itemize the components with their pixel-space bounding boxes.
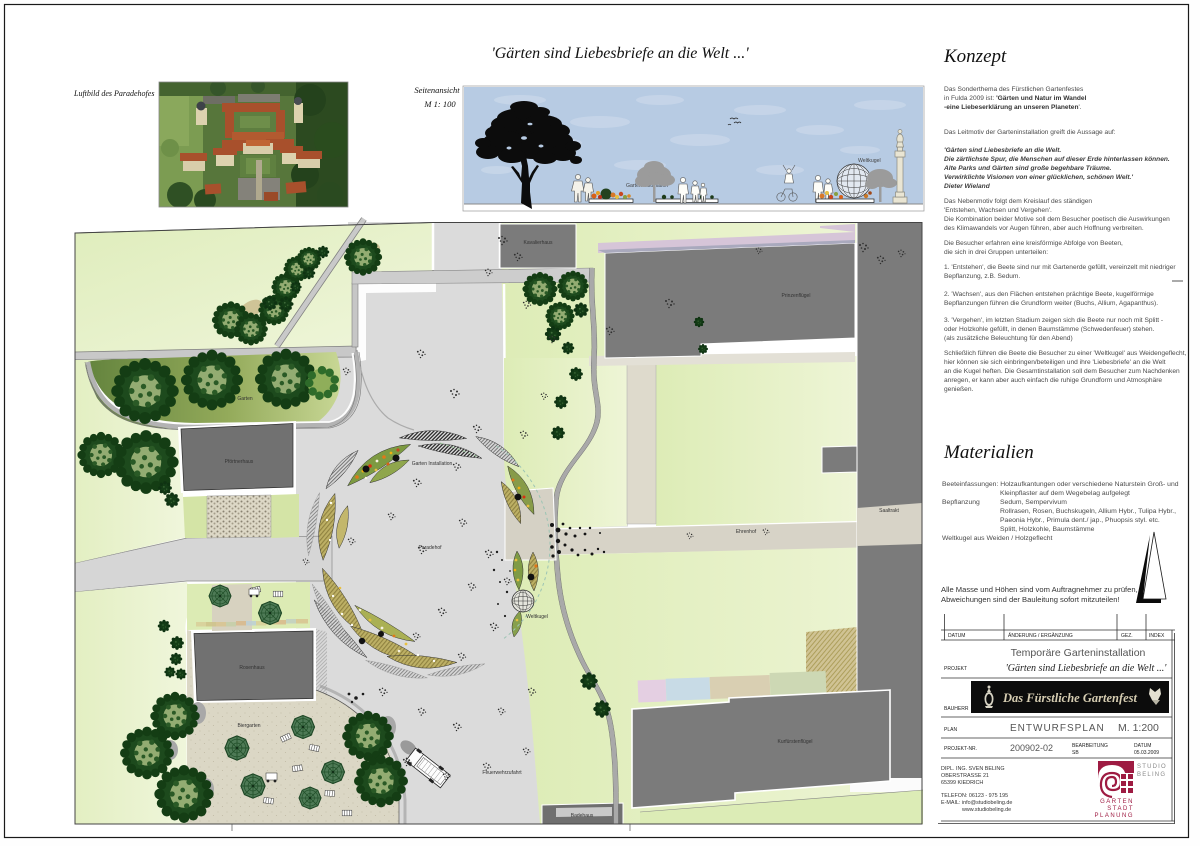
svg-text:an die Kugel heften. Die Gesam: an die Kugel heften. Die Gesamtinstallat… <box>944 368 1180 375</box>
svg-text:Garten: Garten <box>237 396 253 402</box>
svg-text:Kurfürstenflügel: Kurfürstenflügel <box>777 739 812 745</box>
svg-text:Paeonia Hybr., Primula dent./: Paeonia Hybr., Primula dent./ jap., Phuo… <box>1000 517 1160 524</box>
svg-text:Pförtnerhaus: Pförtnerhaus <box>225 459 254 465</box>
svg-text:TELEFON: 06123 - 975 195: TELEFON: 06123 - 975 195 <box>941 793 1008 799</box>
svg-text:DATUM: DATUM <box>1134 743 1151 749</box>
svg-text:Das Fürstliche Gartenfest: Das Fürstliche Gartenfest <box>1002 691 1138 705</box>
svg-text:GARTEN: GARTEN <box>1100 799 1134 805</box>
svg-text:Schließlich führen die Beete d: Schließlich führen die Beete die Besuche… <box>944 350 1187 357</box>
svg-text:Rollrasen, Rosen, Buchskugeln,: Rollrasen, Rosen, Buchskugeln, Allium Hy… <box>1000 508 1176 515</box>
svg-text:Konzept: Konzept <box>943 46 1007 67</box>
svg-text:'Gärten sind Liebesbriefe an d: 'Gärten sind Liebesbriefe an die Welt ..… <box>1006 663 1168 674</box>
svg-text:200902-02: 200902-02 <box>1010 743 1053 753</box>
svg-text:PLANUNG: PLANUNG <box>1094 813 1134 819</box>
svg-text:Bepflanzung: Bepflanzung <box>942 499 980 506</box>
svg-text:Luftbild des Paradehofes: Luftbild des Paradehofes <box>73 89 154 98</box>
svg-text:www.studiobeling.de: www.studiobeling.de <box>961 807 1011 813</box>
svg-text:Die Kombination beider Motive: Die Kombination beider Motive soll dem B… <box>944 216 1170 223</box>
svg-text:Das Leitmotiv der Garteninstal: Das Leitmotiv der Garteninstallation gre… <box>944 129 1116 136</box>
svg-text:Das Nebenmotiv folgt dem Kreis: Das Nebenmotiv folgt dem Kreislauf des s… <box>944 198 1092 205</box>
svg-text:PROJEKT: PROJEKT <box>944 666 967 672</box>
svg-text:Weltkugel: Weltkugel <box>858 158 881 164</box>
svg-text:M 1: 100: M 1: 100 <box>423 99 456 109</box>
svg-text:Alle Masse und Höhen sind vom: Alle Masse und Höhen sind vom Auftragneh… <box>941 585 1138 594</box>
svg-text:Bepflanzung, z.B. Sedum.: Bepflanzung, z.B. Sedum. <box>944 273 1020 280</box>
svg-text:Rosenhaus: Rosenhaus <box>239 665 265 671</box>
svg-text:Splitt, Holzkohle, Baumstämme: Splitt, Holzkohle, Baumstämme <box>1000 526 1095 533</box>
svg-text:Ehrenhof: Ehrenhof <box>736 529 757 535</box>
svg-text:genießen.: genießen. <box>944 386 973 393</box>
svg-text:in Fulda 2009 ist: 'Gärten und: in Fulda 2009 ist: 'Gärten und Natur im … <box>944 95 1087 102</box>
svg-text:Garten Installation: Garten Installation <box>412 461 453 467</box>
svg-text:Beeteinfassungen: Holzaufkantu: Beeteinfassungen: Holzaufkantungen oder … <box>942 481 1179 488</box>
svg-text:Weltkugel aus Weiden / Holzgef: Weltkugel aus Weiden / Holzgeflecht <box>942 535 1053 542</box>
svg-text:2. 'Wachsen', aus den Flächen: 2. 'Wachsen', aus den Flächen entstehen … <box>944 291 1154 298</box>
svg-text:'Gärten sind Liebesbriefe an d: 'Gärten sind Liebesbriefe an die Welt ..… <box>491 45 749 62</box>
svg-text:E-MAIL: info@studiobeling.de: E-MAIL: info@studiobeling.de <box>941 800 1012 806</box>
svg-text:ENTWURFSPLAN: ENTWURFSPLAN <box>1010 723 1105 734</box>
svg-text:DIPL. ING. SVEN BELING: DIPL. ING. SVEN BELING <box>941 766 1005 772</box>
svg-text:Seitenansicht: Seitenansicht <box>414 85 460 95</box>
svg-text:'Entstehen, Wachsen und Vergeh: 'Entstehen, Wachsen und Vergehen'. <box>944 207 1052 214</box>
svg-text:die sich in drei Gruppen unte: die sich in drei Gruppen unterteilen: <box>944 249 1048 256</box>
svg-text:hier können sie sich einbringe: hier können sie sich einbringen/beteilig… <box>944 359 1166 366</box>
svg-text:Weltkugel: Weltkugel <box>526 614 548 620</box>
svg-text:Verwirklichte Visionen von ein: Verwirklichte Visionen von einer glückli… <box>944 174 1133 181</box>
svg-text:BEARBEITUNG: BEARBEITUNG <box>1072 743 1108 749</box>
svg-text:GEZ.: GEZ. <box>1121 633 1133 639</box>
svg-text:oder Holzkohle gefüllt, in den: oder Holzkohle gefüllt, in denen Baumstä… <box>944 326 1155 333</box>
svg-text:65399 KIEDRICH: 65399 KIEDRICH <box>941 780 983 786</box>
svg-text:anregen, er kann aber auch ein: anregen, er kann aber auch einfach die r… <box>944 377 1162 384</box>
svg-text:Kleinpflaster auf dem Wegebela: Kleinpflaster auf dem Wegebelag aufgeleg… <box>1000 490 1130 497</box>
svg-text:PROJEKT-NR.: PROJEKT-NR. <box>944 746 977 752</box>
svg-text:Saaltrakt: Saaltrakt <box>879 508 899 514</box>
svg-text:(als zusätzliche Beleuchtung f: (als zusätzliche Beleuchtung für den Abe… <box>944 335 1073 342</box>
svg-text:Dieter Wieland: Dieter Wieland <box>944 183 991 190</box>
svg-text:M. 1:200: M. 1:200 <box>1118 722 1159 734</box>
svg-text:Feuerwehrzufahrt: Feuerwehrzufahrt <box>482 770 522 776</box>
svg-text:Temporäre Garteninstallation: Temporäre Garteninstallation <box>1011 647 1146 659</box>
svg-text:Das Sonderthema des Fürstliche: Das Sonderthema des Fürstlichen Gartenfe… <box>944 86 1084 93</box>
svg-text:PLAN: PLAN <box>944 727 957 733</box>
svg-text:Abweichungen sind der Bauleitu: Abweichungen sind der Bauleitung sofort … <box>941 595 1120 604</box>
svg-text:Biergarten: Biergarten <box>237 723 260 729</box>
svg-text:Badehaus: Badehaus <box>571 813 594 819</box>
svg-text:'Gärten sind Liebesbriefe an d: 'Gärten sind Liebesbriefe an die Welt. <box>944 147 1061 154</box>
svg-text:BAUHERR: BAUHERR <box>944 706 969 712</box>
svg-text:BELING: BELING <box>1137 772 1166 778</box>
svg-text:1. 'Entstehen', die Beete sind: 1. 'Entstehen', die Beete sind nur mit G… <box>944 264 1176 271</box>
svg-text:Alte Parks und Gärten sind gro: Alte Parks und Gärten sind große begehba… <box>943 165 1111 172</box>
svg-text:Prinzenflügel: Prinzenflügel <box>782 293 811 299</box>
svg-text:INDEX: INDEX <box>1149 633 1165 639</box>
svg-text:Materialien: Materialien <box>943 442 1034 463</box>
svg-text:Die zärtlichste Spur, die Mens: Die zärtlichste Spur, die Menschen auf d… <box>944 156 1170 163</box>
svg-text:Bepflanzungen führen die Grund: Bepflanzungen führen die Grundform weite… <box>944 300 1158 307</box>
svg-text:-eine Liebeserklärung an unser: -eine Liebeserklärung an unseren Planete… <box>944 104 1082 111</box>
svg-text:Paradehof: Paradehof <box>418 545 442 551</box>
svg-text:STADT: STADT <box>1107 806 1134 812</box>
svg-text:ÄNDERUNG / ERGÄNZUNG: ÄNDERUNG / ERGÄNZUNG <box>1008 632 1073 639</box>
svg-text:Sedum, Sempervivum: Sedum, Sempervivum <box>1000 499 1067 506</box>
svg-text:Kavalierhaus: Kavalierhaus <box>524 240 553 246</box>
svg-text:OBERSTRASSE 21: OBERSTRASSE 21 <box>941 773 989 779</box>
svg-text:05.03.2009: 05.03.2009 <box>1134 750 1159 756</box>
svg-text:DATUM: DATUM <box>948 633 965 639</box>
svg-text:des Klimawandels vor Augen füh: des Klimawandels vor Augen führen, aber … <box>944 225 1144 232</box>
svg-text:SB: SB <box>1072 750 1079 756</box>
svg-text:Die Besucher erfahren eine kre: Die Besucher erfahren eine kreisförmige … <box>944 240 1123 247</box>
svg-text:STUDIO: STUDIO <box>1137 764 1167 770</box>
svg-text:3. 'Vergehen', im letzten Stad: 3. 'Vergehen', im letzten Stadium zeigen… <box>944 317 1163 324</box>
